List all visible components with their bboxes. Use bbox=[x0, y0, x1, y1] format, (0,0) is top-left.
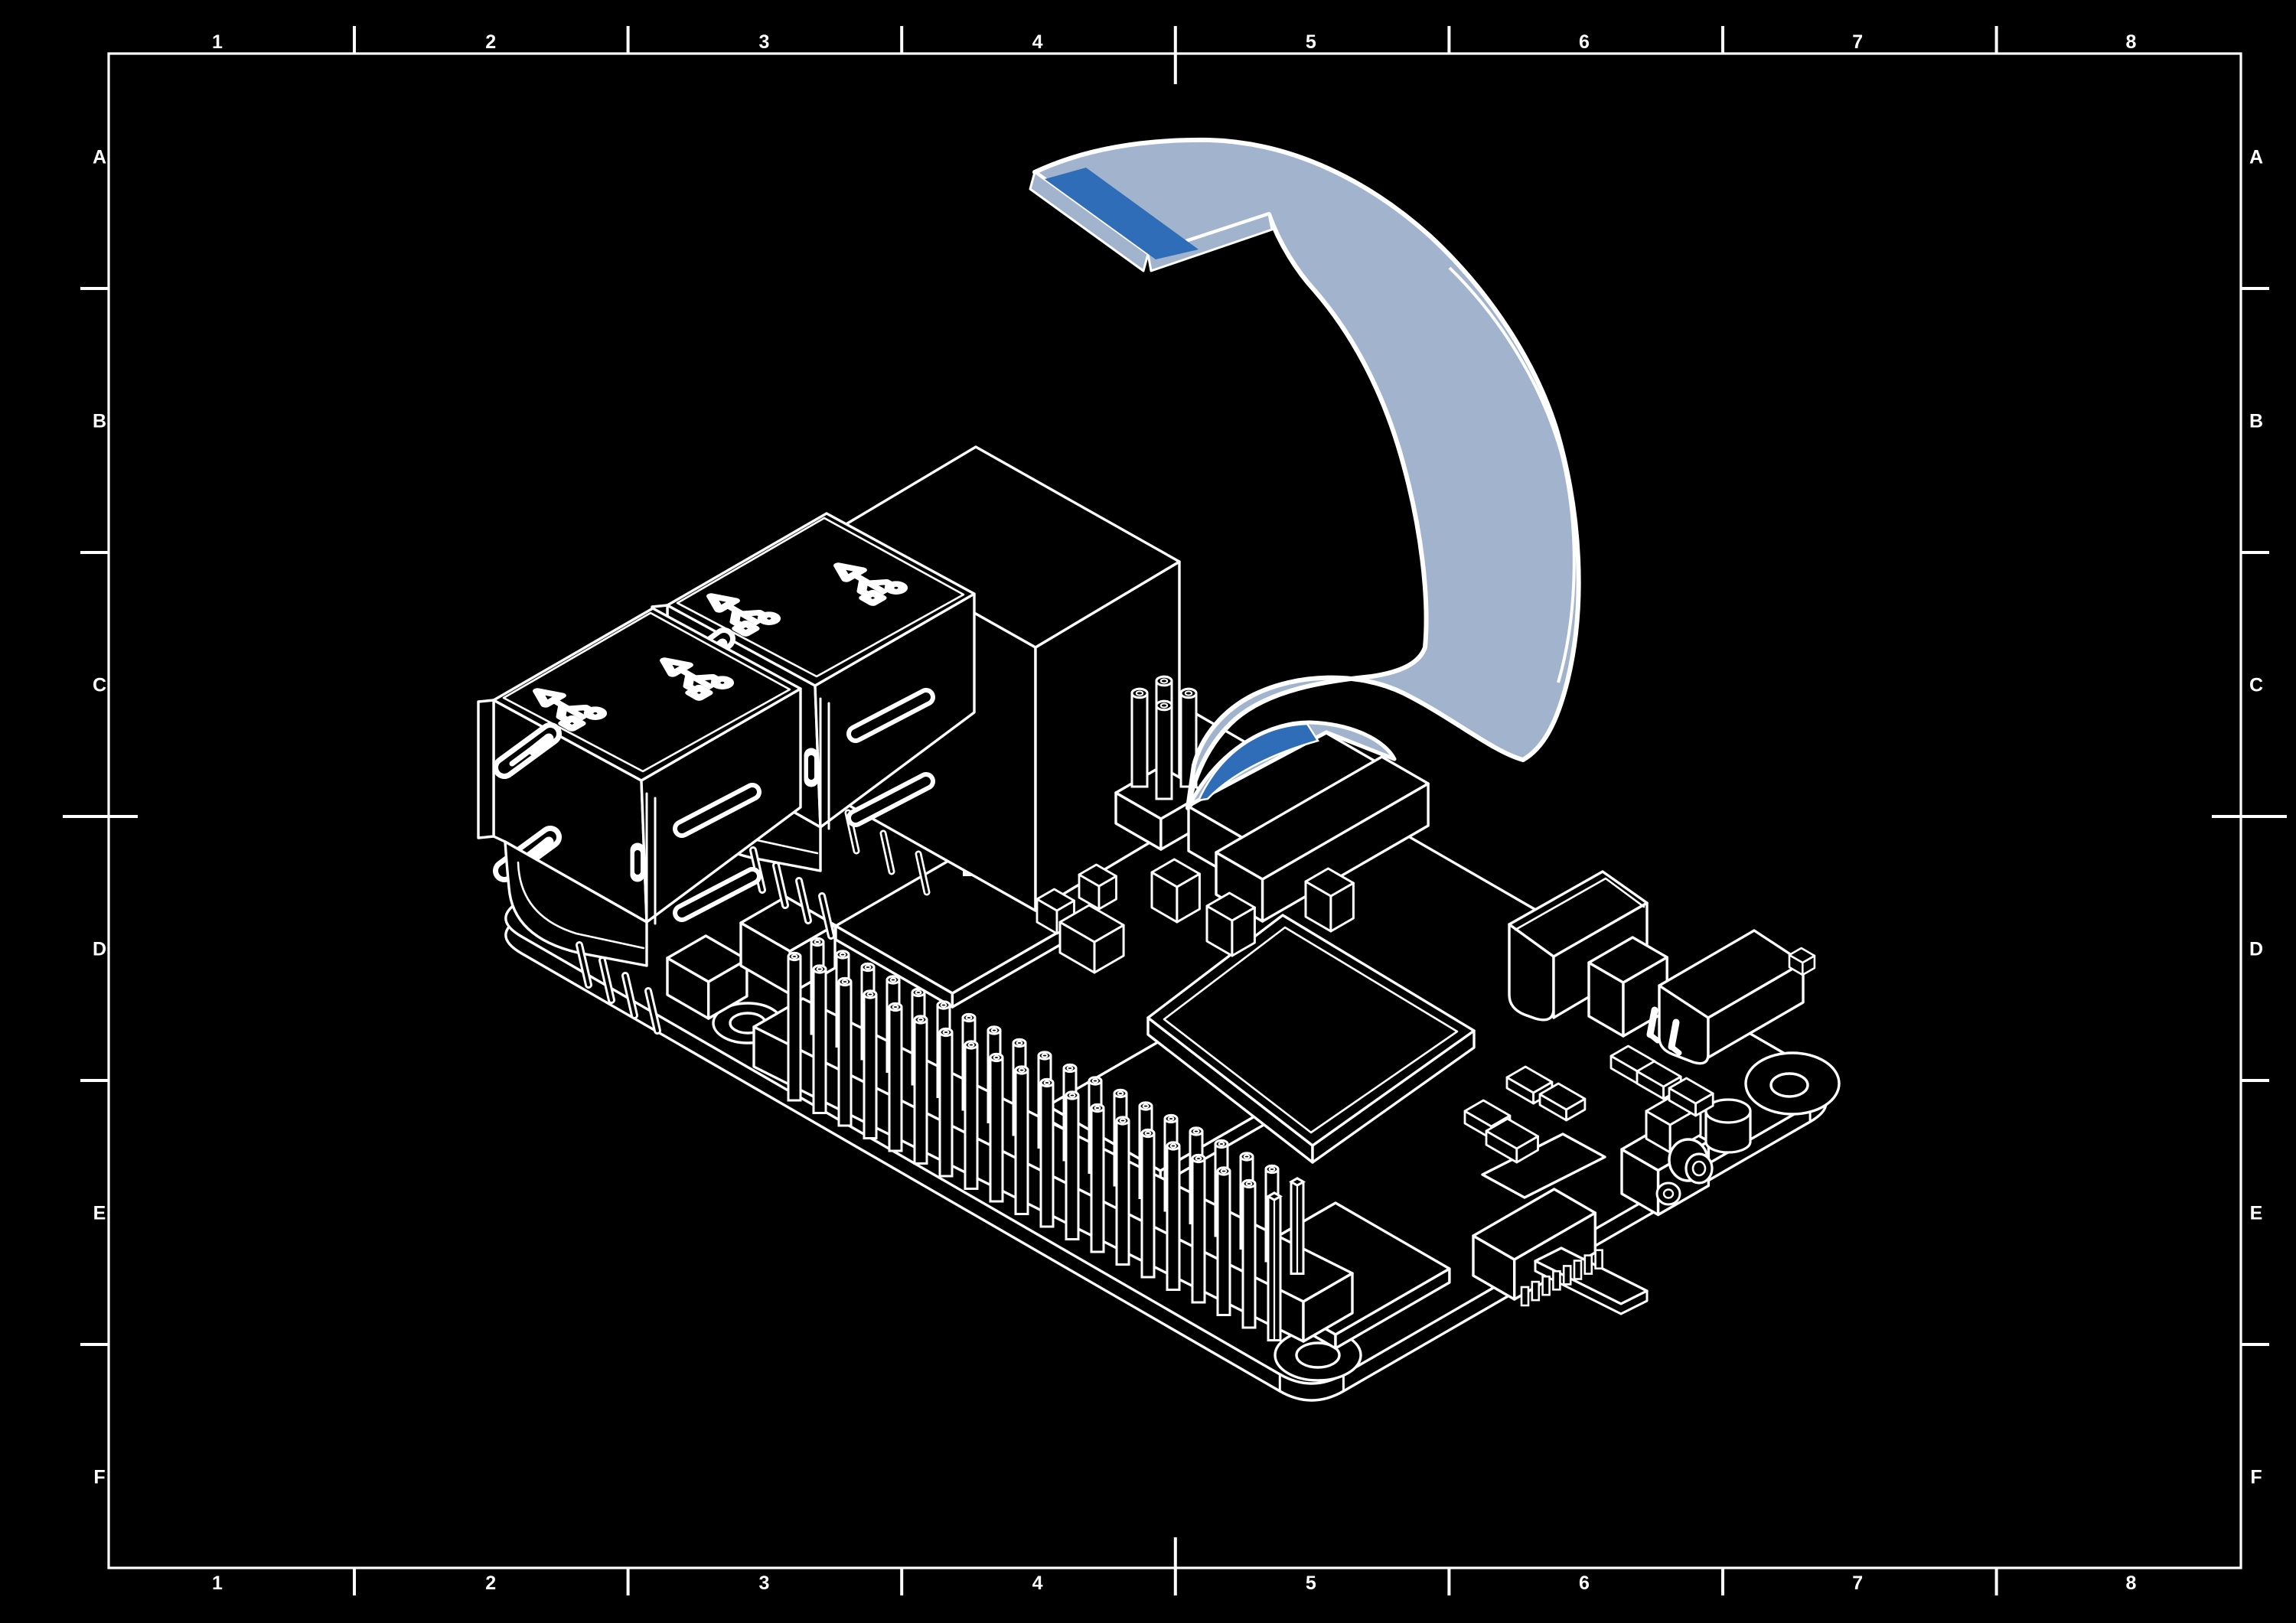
svg-text:4: 4 bbox=[1032, 1572, 1043, 1594]
svg-text:A: A bbox=[2249, 147, 2263, 168]
svg-text:5: 5 bbox=[1306, 1572, 1316, 1594]
svg-text:D: D bbox=[93, 939, 106, 960]
svg-text:2: 2 bbox=[485, 1572, 496, 1594]
svg-text:B: B bbox=[93, 411, 106, 432]
svg-text:F: F bbox=[2250, 1467, 2262, 1488]
svg-text:7: 7 bbox=[1852, 31, 1863, 53]
svg-text:C: C bbox=[93, 675, 106, 696]
svg-text:E: E bbox=[2250, 1203, 2263, 1224]
svg-text:2: 2 bbox=[485, 31, 496, 53]
svg-text:4: 4 bbox=[1032, 31, 1043, 53]
svg-text:6: 6 bbox=[1579, 1572, 1590, 1594]
svg-text:1: 1 bbox=[212, 31, 223, 53]
svg-text:B: B bbox=[2249, 411, 2263, 432]
svg-text:1: 1 bbox=[212, 1572, 223, 1594]
svg-text:A: A bbox=[93, 147, 106, 168]
svg-text:F: F bbox=[93, 1467, 105, 1488]
svg-text:7: 7 bbox=[1852, 1572, 1863, 1594]
svg-text:3: 3 bbox=[758, 1572, 769, 1594]
svg-text:D: D bbox=[2249, 939, 2263, 960]
svg-text:8: 8 bbox=[2125, 31, 2136, 53]
svg-text:E: E bbox=[93, 1203, 106, 1224]
svg-text:C: C bbox=[2249, 675, 2263, 696]
svg-text:3: 3 bbox=[758, 31, 769, 53]
svg-text:5: 5 bbox=[1306, 31, 1316, 53]
svg-text:6: 6 bbox=[1579, 31, 1590, 53]
svg-text:8: 8 bbox=[2125, 1572, 2136, 1594]
